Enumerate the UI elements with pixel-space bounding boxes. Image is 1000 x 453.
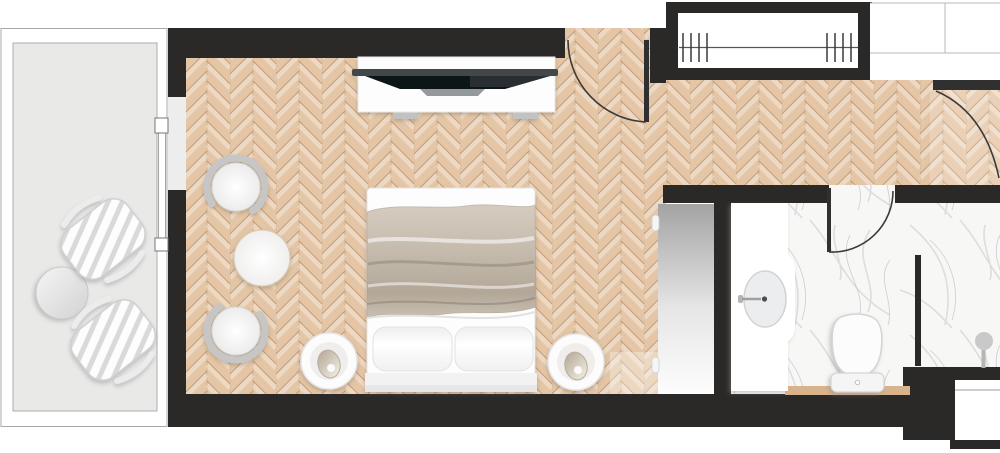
- pillow-left: [373, 327, 452, 371]
- balcony-door-opening: [168, 97, 186, 190]
- utility-box: [955, 380, 1000, 440]
- lamp-highlight: [327, 364, 335, 372]
- lamp-highlight: [574, 366, 582, 374]
- double-bed: [365, 188, 537, 392]
- toilet-bowl: [832, 314, 882, 377]
- door-swing-highlight: [930, 88, 1000, 185]
- drain-dot: [762, 296, 767, 301]
- pillow-right: [455, 327, 533, 371]
- wall-segment: [168, 28, 565, 58]
- wall-segment: [168, 394, 906, 427]
- coffee-table: [234, 230, 290, 286]
- closet: [678, 13, 858, 68]
- tv-frame: [352, 69, 558, 76]
- wall-segment: [895, 185, 1000, 203]
- headboard: [365, 373, 537, 386]
- closet-interior: [678, 13, 858, 68]
- floor-plan-svg: [0, 0, 1000, 453]
- entry-door-leaf: [644, 40, 649, 122]
- vanity: [731, 203, 795, 391]
- utility-box-body: [955, 380, 1000, 440]
- wall-segment: [168, 190, 186, 394]
- shower-partition-wall: [915, 255, 921, 366]
- wardrobe-handle: [652, 357, 659, 373]
- wardrobe-panel: [658, 204, 714, 394]
- wall-segment: [714, 203, 731, 394]
- wall-segment: [903, 380, 955, 440]
- tv-stand: [420, 89, 485, 96]
- wall-segment: [663, 185, 829, 203]
- nightstand-right: [548, 334, 604, 390]
- slider-cap-bottom: [155, 238, 168, 251]
- wardrobe: [652, 204, 714, 394]
- wall-segment: [168, 58, 186, 97]
- wardrobe-handle: [652, 215, 659, 231]
- hall-door-leaf: [933, 80, 1000, 90]
- nightstand-left: [301, 333, 357, 389]
- wall-segment: [650, 28, 666, 83]
- tv-console: [352, 57, 558, 119]
- toilet: [831, 314, 884, 392]
- slider-track: [159, 133, 166, 238]
- slider-cap-top: [155, 118, 168, 133]
- shower-stem: [982, 349, 986, 368]
- floor-plan-screen: [0, 0, 1000, 453]
- bathroom-door-leaf: [827, 188, 831, 252]
- flush-button: [855, 380, 859, 384]
- wall-segment: [666, 2, 872, 13]
- luggage-counter: [870, 3, 1000, 80]
- shower-head: [975, 332, 993, 350]
- wall-segment: [950, 440, 1000, 449]
- wall-segment: [903, 367, 1000, 380]
- counter-surface: [870, 3, 1000, 80]
- headboard-edge: [365, 385, 537, 392]
